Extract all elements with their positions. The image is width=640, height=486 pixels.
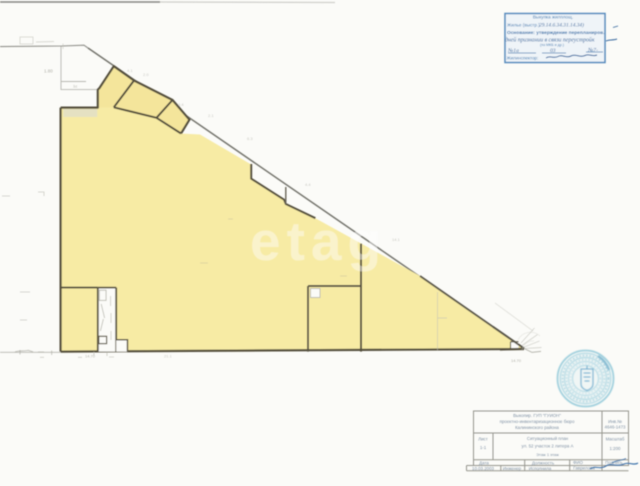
svg-text:etag: etag (250, 210, 387, 272)
svg-text:Инженер: Инженер (503, 466, 522, 471)
svg-text:Инв.№: Инв.№ (608, 419, 622, 424)
svg-text:ФИО: ФИО (573, 460, 583, 465)
svg-text:4.1: 4.1 (127, 68, 133, 73)
svg-text:Выкупка жилплощ.: Выкупка жилплощ. (533, 15, 573, 20)
svg-text:Должность: Должность (532, 460, 555, 465)
svg-text:Этаж 1 этаж: Этаж 1 этаж (536, 452, 559, 457)
svg-text:ул. 52 участок 2 литера А: ул. 52 участок 2 литера А (522, 444, 574, 449)
svg-text:Исполнила: Исполнила (529, 466, 552, 471)
svg-text:1:200: 1:200 (610, 446, 622, 451)
svg-text:6.3: 6.3 (247, 136, 253, 141)
svg-text:1.80: 1.80 (44, 69, 53, 74)
svg-text:2.1: 2.1 (208, 113, 214, 118)
svg-text:10.03.2003: 10.03.2003 (472, 466, 495, 471)
svg-text:1-1: 1-1 (480, 445, 487, 450)
svg-text:Подпись: Подпись (605, 460, 623, 465)
svg-text:14.70: 14.70 (85, 354, 96, 359)
svg-text:Дата: Дата (479, 460, 489, 465)
svg-text:проектно-инвентаризационное бю: проектно-инвентаризационное бюро (500, 419, 575, 424)
svg-text:2.0: 2.0 (143, 72, 149, 77)
svg-text:21.1: 21.1 (164, 354, 173, 359)
svg-text:Выкопир. ГУП "ГУИОН": Выкопир. ГУП "ГУИОН" (513, 413, 561, 418)
svg-text:Калининского района: Калининского района (515, 425, 559, 430)
svg-text:1c: 1c (73, 84, 77, 89)
svg-text:(по МКБ и др.): (по МКБ и др.) (540, 43, 564, 47)
svg-text:№7-: №7- (587, 48, 598, 54)
svg-text:Жилье (выстр.): Жилье (выстр.) (507, 23, 540, 28)
svg-text:4.4: 4.4 (305, 182, 311, 187)
svg-text:Масштаб: Масштаб (606, 437, 625, 442)
svg-text:14.1: 14.1 (392, 237, 401, 242)
svg-text:29.14.6.34.31.14.34): 29.14.6.34.31.14.34) (539, 22, 584, 29)
svg-text:Основание: утверждение перепла: Основание: утверждение перепланиров. (507, 30, 604, 36)
svg-text:Ситуационный план: Ситуационный план (527, 436, 569, 441)
svg-text:Лист: Лист (478, 437, 488, 442)
svg-text:14.70: 14.70 (511, 358, 522, 363)
svg-text:4646-1473: 4646-1473 (605, 425, 627, 430)
svg-text:3.4: 3.4 (178, 102, 184, 107)
svg-text:Жилинспектор:: Жилинспектор: (507, 56, 539, 61)
